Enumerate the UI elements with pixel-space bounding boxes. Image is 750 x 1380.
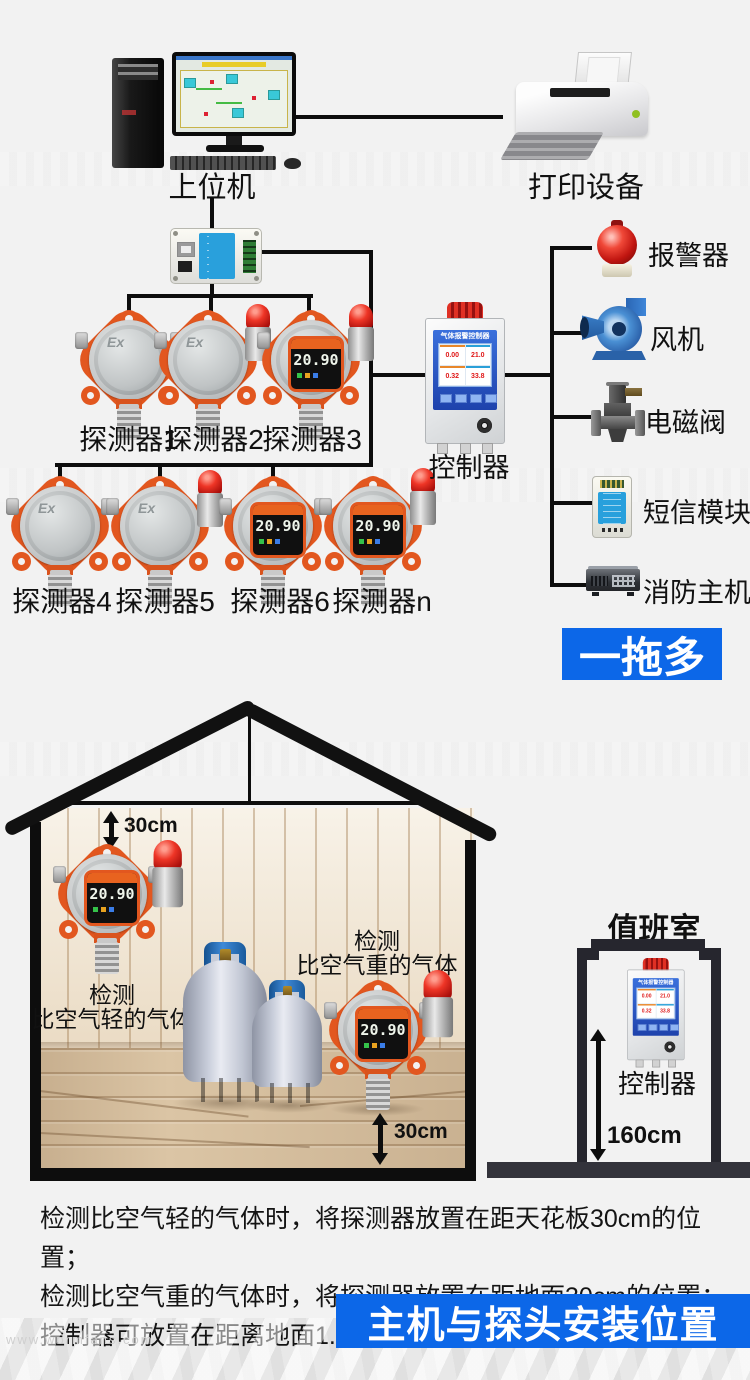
display-value: 20.90 [253, 515, 303, 537]
house-floor-line [30, 1168, 476, 1181]
alarm-beacon-icon [346, 304, 376, 362]
output-sms-label: 短信模块 [643, 491, 750, 530]
solenoid-valve-icon [592, 382, 644, 450]
mount-wing [402, 552, 421, 571]
mouse-icon [284, 158, 301, 169]
branch-sms [550, 501, 592, 505]
output-alarm-label: 报警器 [648, 234, 729, 273]
valve-coil [609, 385, 626, 404]
screen-block [232, 108, 244, 118]
led [313, 373, 318, 378]
floor-detector-icon: 20.90 [333, 982, 423, 1114]
branch-alarm [550, 246, 592, 250]
sms-label-panel [598, 492, 626, 524]
reading-cell: 0.32 [440, 366, 465, 386]
panel-button [638, 1024, 647, 1030]
beacon-stem [152, 867, 183, 907]
display-leds [353, 539, 403, 544]
controller-height-arrow [596, 1040, 601, 1150]
beacon-dome [424, 970, 452, 1000]
branch-valve [550, 415, 592, 419]
reading-cell: 21.0 [466, 345, 491, 365]
screen-banner [202, 62, 267, 67]
led [101, 907, 106, 912]
detector-4-label: 探测器4 [12, 580, 112, 620]
mount-wing [325, 552, 344, 571]
panel-button [649, 1024, 658, 1030]
detector-face: Ex [20, 486, 100, 566]
mount-wing [330, 1056, 349, 1075]
display-value: 20.90 [358, 1019, 408, 1041]
mount-wing [112, 552, 131, 571]
printer-tray [500, 132, 604, 160]
screw-dot [173, 231, 178, 236]
mount-wing [225, 552, 244, 571]
controller-screen: 0.00 21.0 0.32 33.8 [636, 988, 675, 1020]
bus-row2 [55, 463, 373, 467]
display-value: 20.90 [291, 349, 341, 371]
screen-titlebar [176, 56, 292, 60]
printer-icon [514, 52, 654, 164]
panel-button [455, 394, 467, 403]
cable-port [324, 1002, 337, 1019]
mount-wing [237, 386, 256, 405]
terminal-block [243, 240, 256, 273]
detector-5-label: 探测器5 [115, 580, 215, 620]
led [297, 373, 302, 378]
controller-lock-knob [664, 1042, 675, 1053]
display-header [353, 505, 403, 515]
converter-label-panel [199, 233, 235, 279]
detector-6-label: 探测器6 [230, 580, 330, 620]
output-fan-label: 风机 [650, 318, 704, 357]
screen-block [184, 78, 196, 88]
led [359, 539, 364, 544]
screen-dot [210, 80, 214, 84]
monitor-base [206, 145, 264, 152]
signal-converter-icon [170, 228, 262, 284]
reading-cell: 33.8 [656, 1004, 674, 1018]
cable-port [257, 332, 270, 349]
house-ceiling-line [72, 801, 418, 805]
led [372, 1043, 377, 1048]
fan-icon [582, 298, 650, 360]
controller-buttons [638, 1024, 679, 1030]
beacon-dome [349, 304, 373, 329]
ceiling-gap-arrow [109, 822, 114, 838]
watermark-text: www.wormfans.com [6, 1332, 154, 1347]
panel-button [670, 1024, 679, 1030]
fire-host-icon [586, 566, 640, 596]
cylinder-body [252, 995, 322, 1087]
ex-mark: Ex [186, 334, 203, 350]
controller-icon: 气体报警控制器 0.00 21.0 0.32 33.8 [425, 302, 505, 454]
printer-slot [550, 88, 610, 97]
valve-flange [635, 410, 645, 436]
beacon-stem [348, 327, 374, 361]
controller-label: 控制器 [429, 446, 510, 485]
valve-foot [608, 429, 627, 442]
led [93, 907, 98, 912]
mount-wing [89, 552, 108, 571]
mount-wing [340, 386, 359, 405]
controller-lock-knob [477, 418, 492, 433]
mount-wing [189, 552, 208, 571]
ex-mark: Ex [107, 334, 124, 350]
cable-port [319, 498, 332, 515]
mount-wing [263, 386, 282, 405]
printer-power-led [632, 110, 640, 118]
output-fire-label: 消防主机 [643, 571, 750, 610]
sms-leds [602, 528, 624, 532]
beacon-stem [410, 491, 436, 525]
panel-button [659, 1024, 668, 1030]
detector-face: 20.90 [271, 320, 351, 400]
ceiling-detector-icon: 20.90 [62, 846, 152, 978]
mount-wing [160, 386, 179, 405]
detector-2-label: 探测器2 [164, 418, 264, 458]
mount-wing [81, 386, 100, 405]
ceiling-gap-label: 30cm [124, 814, 178, 838]
duty-controller-icon: 气体报警控制器 0.00 21.0 0.32 33.8 [627, 958, 685, 1067]
host-computer-icon [112, 52, 307, 172]
install-position-banner: 主机与探头安装位置 [336, 1294, 750, 1348]
screw-dot [254, 276, 259, 281]
display-value: 20.90 [87, 883, 137, 905]
display-leds [291, 373, 341, 378]
cylinder-base [256, 1083, 318, 1103]
cable-port [75, 332, 88, 349]
led [364, 1043, 369, 1048]
computer-tower-icon [112, 58, 164, 168]
led [375, 539, 380, 544]
beacon-dome [198, 470, 222, 495]
alarm-beacon-icon [150, 840, 185, 908]
display-leds [358, 1043, 408, 1048]
cable-port [53, 866, 66, 883]
panel-button [485, 394, 497, 403]
led [275, 539, 280, 544]
duty-room-left-wall [577, 948, 587, 1162]
led [267, 539, 272, 544]
beacon-stem [422, 997, 453, 1037]
fire-host-keys [612, 575, 635, 587]
display-header [358, 1009, 408, 1019]
mount-wing [12, 552, 31, 571]
controller-screen: 0.00 21.0 0.32 33.8 [438, 343, 492, 387]
controller-screen-title: 气体报警控制器 [633, 980, 679, 986]
led [259, 539, 264, 544]
detector-face: Ex [120, 486, 200, 566]
connector-controller-outputs [504, 373, 552, 377]
floor-gap-label: 30cm [394, 1120, 448, 1144]
printer-label: 打印设备 [528, 164, 644, 206]
output-valve-label: 电磁阀 [645, 401, 726, 440]
one-to-many-banner: 一拖多 [562, 628, 722, 680]
floor-gap-arrow [378, 1124, 383, 1154]
fan-base [592, 351, 646, 360]
connector-converter-right [260, 250, 371, 254]
detector-display: 20.90 [288, 336, 344, 392]
screw-dot [173, 276, 178, 281]
connector-computer-printer [296, 115, 503, 119]
detector-face: 20.90 [67, 854, 147, 934]
infographic-canvas: 上位机 打印设备 Ex [0, 0, 750, 1380]
roof-center-post [248, 710, 251, 803]
sensor-cylinder [366, 1078, 390, 1110]
detector-display: 20.90 [250, 502, 306, 558]
mount-wing [302, 552, 321, 571]
ex-mark: Ex [138, 500, 155, 516]
beacon-dome [154, 840, 182, 870]
led [367, 539, 372, 544]
usb-port [177, 242, 195, 257]
display-header [291, 339, 341, 349]
cable-port [106, 498, 119, 515]
screen-line [216, 102, 242, 104]
reading-cell: 0.00 [440, 345, 465, 365]
siren-dome [597, 225, 637, 265]
siren-base [602, 264, 632, 277]
controller-buttons [440, 394, 497, 403]
mount-wing [407, 1056, 426, 1075]
ex-mark: Ex [38, 500, 55, 516]
detector-face: 20.90 [233, 486, 313, 566]
mount-wing [136, 920, 155, 939]
screw-dot [254, 231, 259, 236]
connector-to-controller [369, 373, 425, 377]
detector-face: 20.90 [333, 486, 413, 566]
duty-room-right-wall [711, 948, 721, 1162]
sensor-cylinder [95, 942, 119, 974]
duty-controller-label: 控制器 [618, 1064, 696, 1101]
detector-face: 20.90 [338, 990, 418, 1070]
valve-arm [625, 388, 642, 396]
display-leds [87, 907, 137, 912]
light-gas-label-line2: 比空气轻的气体 [32, 1000, 193, 1034]
sms-terminal [600, 480, 624, 488]
mount-wing [59, 920, 78, 939]
screen-block [226, 74, 238, 84]
computer-monitor-icon [172, 52, 296, 136]
fire-host-foot [592, 592, 599, 596]
display-leds [253, 539, 303, 544]
reading-cell: 33.8 [466, 366, 491, 386]
fan-hub [612, 322, 626, 336]
display-header [253, 505, 303, 515]
led [305, 373, 310, 378]
scada-screen [176, 56, 292, 132]
detector-n-label: 探测器n [332, 580, 432, 620]
house-right-wall [465, 840, 476, 1180]
screen-block [268, 90, 280, 100]
cable-port [219, 498, 232, 515]
led [380, 1043, 385, 1048]
cable-port [154, 332, 167, 349]
reading-cell: 0.00 [638, 989, 656, 1003]
panel-button [440, 394, 452, 403]
panel-button [470, 394, 482, 403]
controller-screen-title: 气体报警控制器 [433, 332, 497, 341]
alarm-siren-icon [594, 220, 640, 278]
duty-room-top [591, 939, 705, 951]
bus-row1 [127, 294, 313, 298]
valve-flange [591, 410, 601, 436]
duty-room-floor [487, 1162, 750, 1178]
reading-cell: 21.0 [656, 989, 674, 1003]
detector-display: 20.90 [84, 870, 140, 926]
alarm-beacon-icon [420, 970, 455, 1038]
detector-display: 20.90 [350, 502, 406, 558]
sms-module-icon [592, 476, 632, 538]
cable-port [6, 498, 19, 515]
led [109, 907, 114, 912]
fire-host-foot [627, 592, 634, 596]
connector-computer-converter [210, 198, 214, 228]
note-line-1: 检测比空气轻的气体时，将探测器放置在距天花板30cm的位置； [40, 1200, 740, 1278]
controller-height-label: 160cm [607, 1122, 682, 1150]
fan-mouth [580, 317, 589, 338]
detector-display: 20.90 [355, 1006, 411, 1062]
screen-dot [204, 112, 208, 116]
display-value: 20.90 [353, 515, 403, 537]
reading-cell: 0.32 [638, 1004, 656, 1018]
display-header [87, 873, 137, 883]
detector-face: Ex [168, 320, 248, 400]
converter-switch [178, 261, 192, 272]
monitor-stand [226, 136, 242, 145]
fire-host-vent [591, 576, 608, 586]
screen-dot [252, 96, 256, 100]
detector-3-label: 探测器3 [262, 418, 362, 458]
gas-cylinder-small-icon [252, 980, 322, 1108]
screen-line [196, 88, 222, 90]
